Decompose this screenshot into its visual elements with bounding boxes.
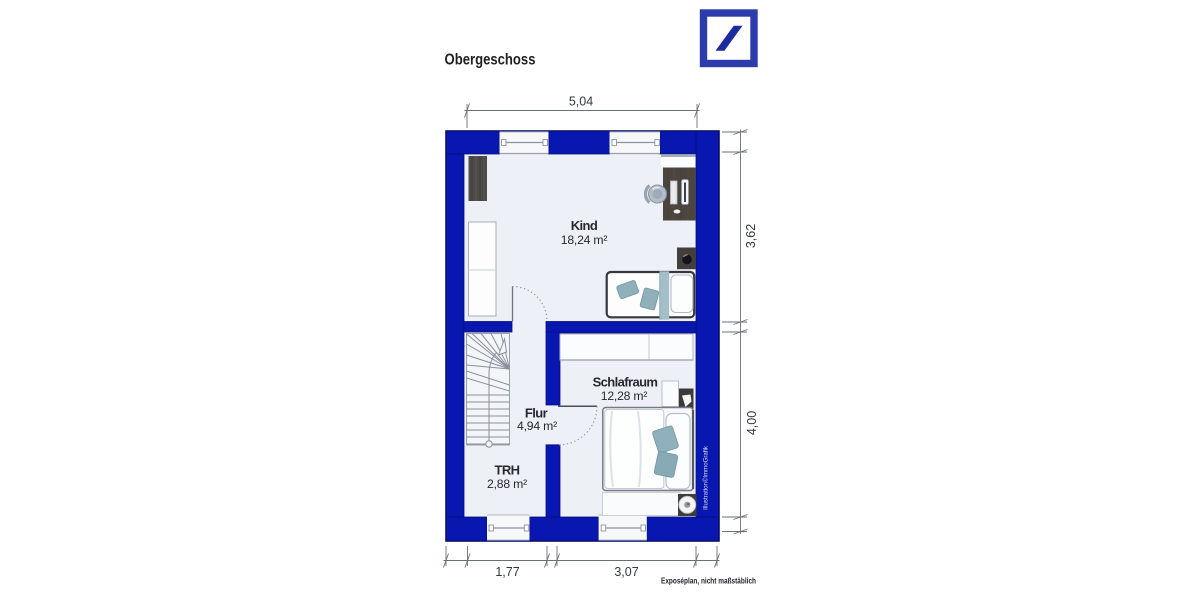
svg-text:Illustration©ImmoGrafik: Illustration©ImmoGrafik <box>703 445 710 510</box>
svg-text:4,00: 4,00 <box>745 411 759 435</box>
svg-text:Obergeschoss: Obergeschoss <box>445 52 536 69</box>
svg-text:Exposéplan, nicht maßstäblich: Exposéplan, nicht maßstäblich <box>661 577 756 586</box>
svg-text:3,07: 3,07 <box>614 565 638 579</box>
svg-text:12,28 m²: 12,28 m² <box>601 389 648 403</box>
svg-text:2,88 m²: 2,88 m² <box>487 477 527 491</box>
svg-text:Schlafraum: Schlafraum <box>593 375 658 390</box>
svg-text:Kind: Kind <box>571 218 598 233</box>
svg-text:TRH: TRH <box>495 463 520 478</box>
svg-text:1,77: 1,77 <box>495 565 519 579</box>
svg-text:3,62: 3,62 <box>744 224 758 248</box>
svg-text:4,94 m²: 4,94 m² <box>517 419 557 433</box>
svg-text:18,24 m²: 18,24 m² <box>561 233 608 247</box>
svg-text:5,04: 5,04 <box>569 95 593 109</box>
